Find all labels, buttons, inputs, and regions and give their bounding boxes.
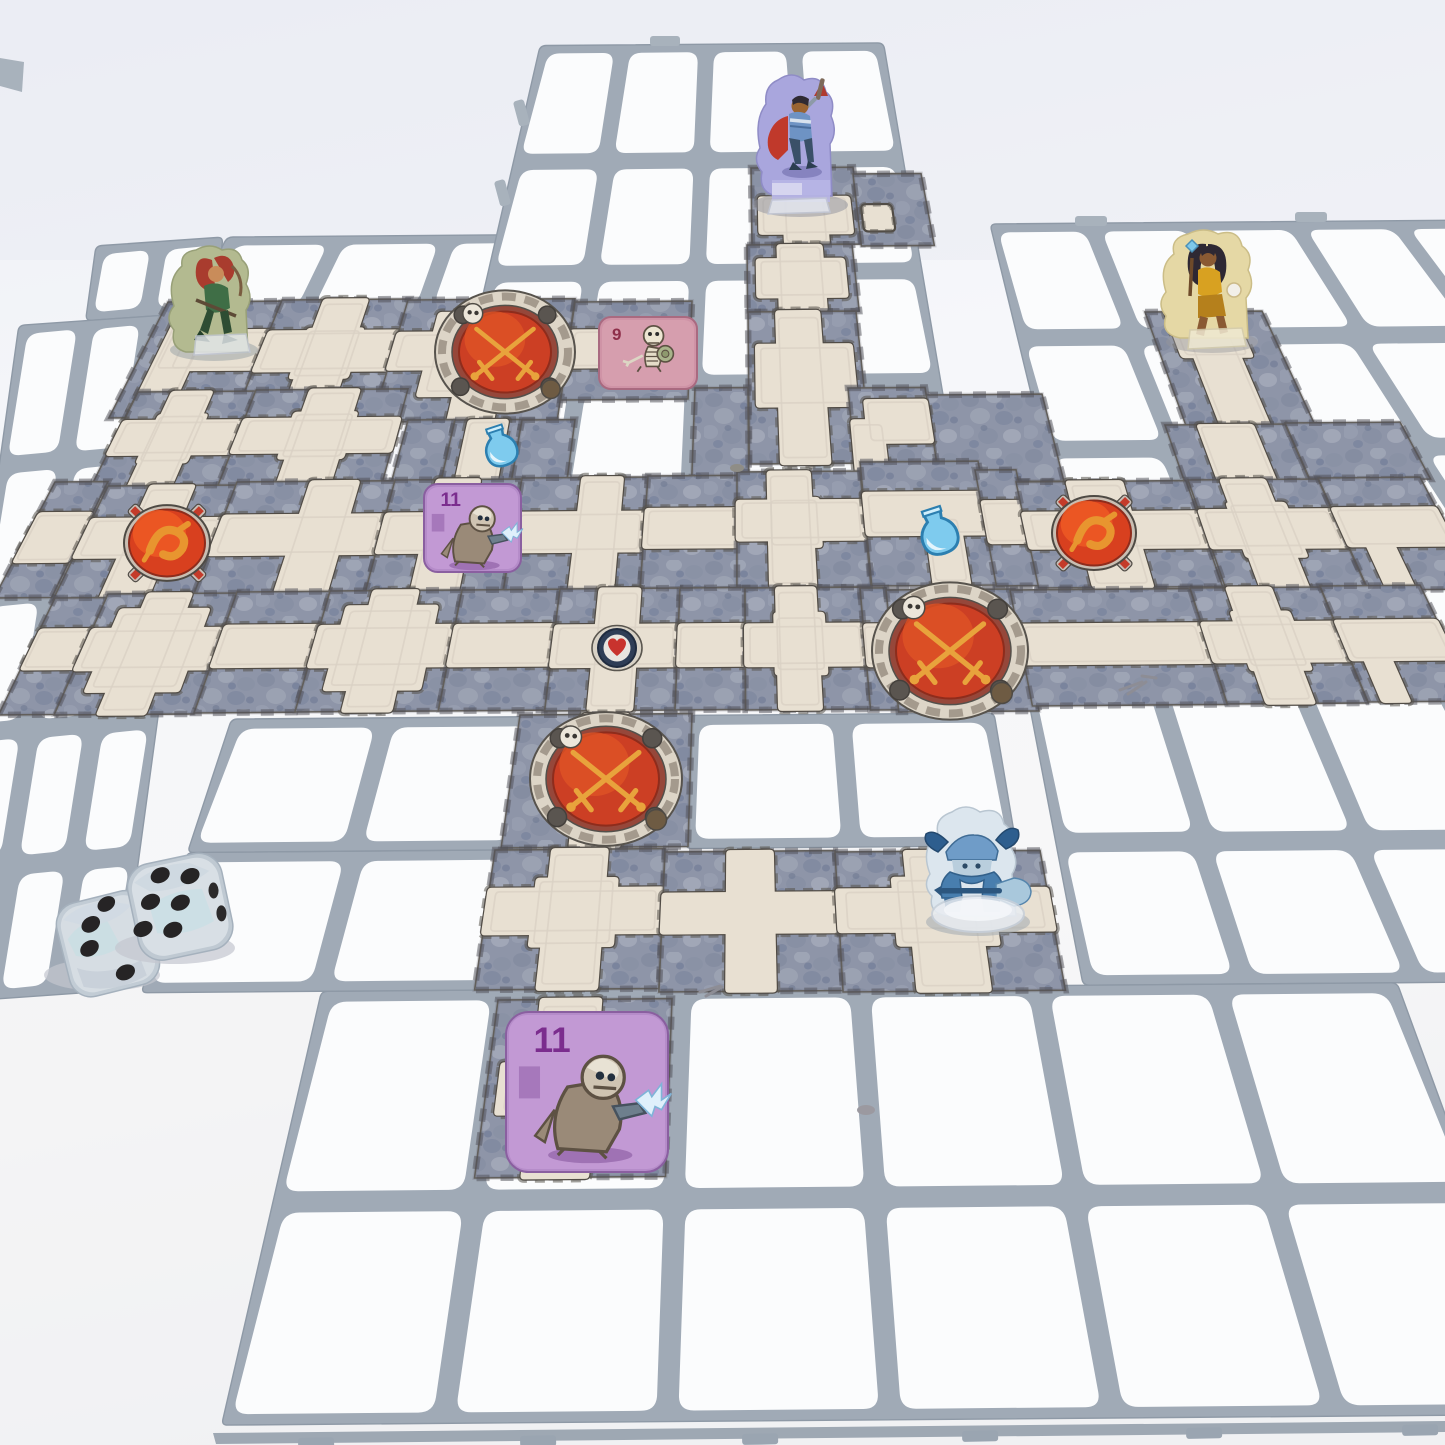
svg-text:11: 11 xyxy=(440,489,461,511)
svg-text:9: 9 xyxy=(612,325,621,344)
svg-text:11: 11 xyxy=(534,1021,571,1060)
